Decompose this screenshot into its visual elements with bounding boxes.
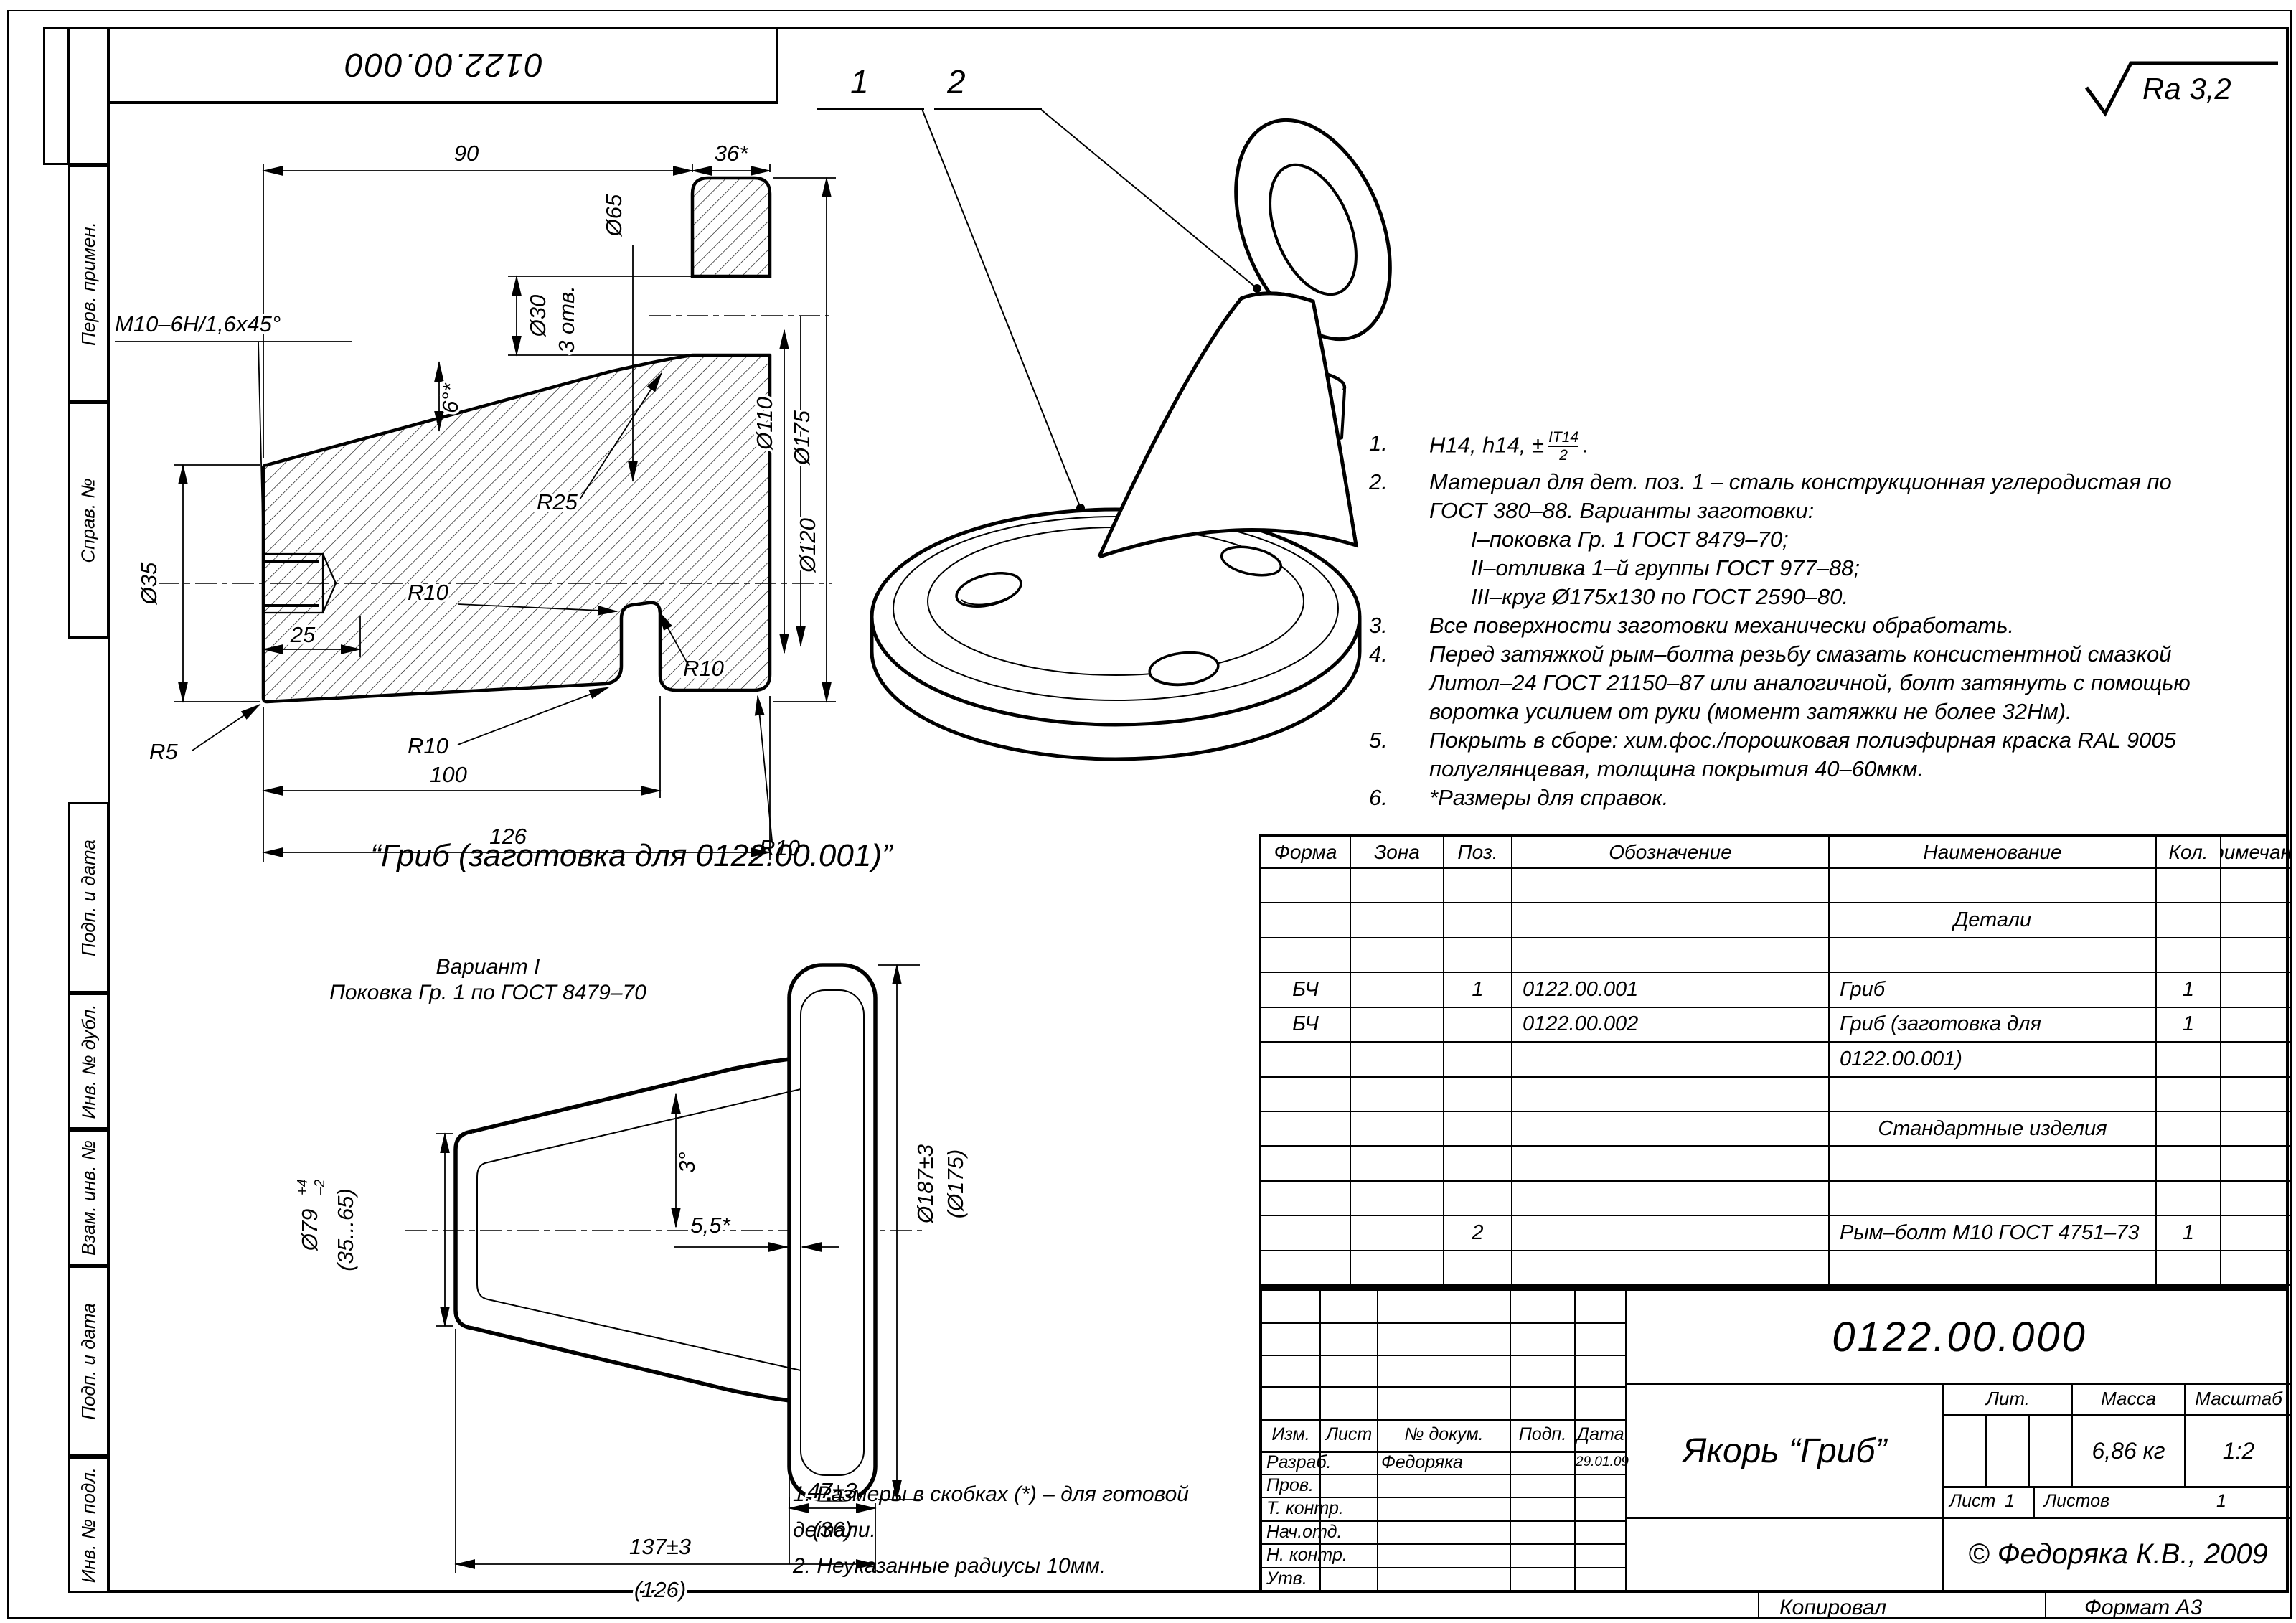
- specification-table: Форма Зона Поз. Обозначение Наименование…: [1259, 834, 2289, 1288]
- margin-box-perv-primen: Перв. примен.: [68, 165, 109, 402]
- spec-cell: [2221, 973, 2291, 1007]
- note-3-line-1: Все поверхности заготовки механически об…: [1429, 613, 2014, 638]
- spec-cell: [2157, 1251, 2221, 1286]
- dim-3deg-label: 3°: [674, 1152, 700, 1173]
- spec-cell: [1261, 869, 1351, 903]
- spec-cell: [1351, 938, 1444, 973]
- scale-label: Масштаб: [2186, 1383, 2292, 1414]
- dim-r25-label: R25: [537, 489, 578, 514]
- dim-d187-label: Ø187±3: [913, 1144, 938, 1224]
- note-1: 1. H14, h14, ±IT142.: [1363, 429, 2296, 464]
- spec-cell: [1261, 1112, 1351, 1147]
- dim-angle-label: 6°*: [438, 382, 463, 413]
- note-5-line-2w: полуглянцевая, толщина покрытия 40–60мкм…: [1363, 755, 2296, 784]
- note-1-num: 1.: [1369, 429, 1388, 458]
- thread-callout-label: M10–6H/1,6х45°: [115, 311, 281, 337]
- blank-view-subtitle: “Гриб (заготовка для 0122.00.001)”: [301, 838, 961, 874]
- spec-cell: [1444, 903, 1512, 938]
- blank-stem-outline: [456, 1059, 791, 1401]
- spec-cell: [1512, 1078, 1830, 1112]
- spec-cell: Гриб: [1830, 973, 2157, 1007]
- note-2-sub-3w: III–круг Ø175х130 по ГОСТ 2590–80.: [1363, 583, 2296, 611]
- spec-cell: [2221, 1008, 2291, 1043]
- part-title: Якорь “Гриб”: [1627, 1385, 1942, 1517]
- staff-nachotd-label: Нач.отд.: [1266, 1520, 1374, 1543]
- col-list-label: Лист: [1321, 1419, 1377, 1451]
- spec-cell: [2221, 1078, 2291, 1112]
- spec-cell: 0122.00.002: [1512, 1008, 1830, 1043]
- staff-utv-label: Утв.: [1266, 1567, 1374, 1590]
- staff-razrab-date: 29.01.09: [1576, 1451, 1625, 1474]
- corner-cell-b: [67, 27, 109, 165]
- note-6-line-1: *Размеры для справок.: [1429, 785, 1668, 810]
- staff-razrab-name: Федоряка: [1381, 1451, 1507, 1474]
- spec-cell: 1: [1444, 973, 1512, 1007]
- note-6-num: 6.: [1369, 784, 1388, 812]
- note-2-sub-2w: II–отливка 1–й группы ГОСТ 977–88;: [1363, 554, 2296, 583]
- spec-cell: [1444, 1008, 1512, 1043]
- note-5-num: 5.: [1369, 726, 1388, 755]
- spec-cell: [1351, 1112, 1444, 1147]
- blank-variant-note: Вариант I Поковка Гр. 1 по ГОСТ 8479–70: [280, 954, 696, 1006]
- dim-d79-tol-plus: +4: [295, 1179, 311, 1195]
- spec-cell: 0122.00.001: [1512, 973, 1830, 1007]
- spec-cell: [1351, 1043, 1444, 1077]
- spec-cell: [1351, 1008, 1444, 1043]
- margin-box-inv-dubl: Инв. № дубл.: [68, 993, 109, 1129]
- dim-126-ref-label: (126): [634, 1577, 686, 1602]
- spec-cell: [2157, 1112, 2221, 1147]
- surface-finish-symbol: Ra 3,2: [2074, 53, 2289, 122]
- blank-note-1: 1. Размеры в скобках (*) – для готовой д…: [793, 1477, 1266, 1548]
- spec-cell: [1444, 1147, 1512, 1181]
- spec-cell: [2221, 1182, 2291, 1216]
- spec-cell: [2157, 938, 2221, 973]
- dim-d30-count-label: 3 отв.: [554, 286, 579, 353]
- spec-cell: [2221, 869, 2291, 903]
- note-1-text: H14, h14, ±: [1429, 432, 1544, 457]
- note-1-fraction: IT142: [1548, 429, 1578, 464]
- spec-cell: [1512, 869, 1830, 903]
- spec-cell: [1512, 938, 1830, 973]
- spec-cell: [2157, 1078, 2221, 1112]
- corner-cell-a: [43, 27, 69, 165]
- spec-cell: [1830, 1182, 2157, 1216]
- margin-label: Инв. № дубл.: [77, 1004, 100, 1119]
- r10-leader-2: [458, 687, 608, 745]
- spec-table-row: БЧ0122.00.002Гриб (заготовка для1: [1261, 1008, 2291, 1043]
- margin-label: Справ. №: [77, 478, 100, 563]
- dim-d30-label: Ø30: [525, 295, 550, 338]
- spec-table-row: [1261, 1078, 2291, 1112]
- note-5: 5.Покрыть в сборе: хим.фос./порошковая п…: [1363, 726, 2296, 755]
- spec-cell: БЧ: [1261, 1008, 1351, 1043]
- spec-cell: [2221, 938, 2291, 973]
- spec-cell: [1512, 1043, 1830, 1077]
- sheets-label: Листов: [2044, 1486, 2123, 1517]
- dim-d65-label: Ø65: [601, 194, 626, 237]
- dim-d175-ref-label: (Ø175): [943, 1149, 968, 1218]
- spec-cell: [1351, 1182, 1444, 1216]
- note-4-line-3: воротка усилием от руки (момент затяжки …: [1429, 699, 2072, 724]
- spec-cell: [2221, 1216, 2291, 1251]
- dim-55-label: 5,5*: [690, 1213, 730, 1238]
- spec-cell: 1: [2157, 1008, 2221, 1043]
- r5-leader: [192, 705, 260, 751]
- dim-r10-label-3: R10: [683, 656, 724, 681]
- note-4: 4.Перед затяжкой рым–болта резьбу смазат…: [1363, 640, 2296, 669]
- dim-d187: [878, 965, 920, 1500]
- dim-d79-tol-minus: –2: [312, 1180, 328, 1196]
- lit-label: Лит.: [1944, 1383, 2071, 1414]
- dim-r10-label-1: R10: [408, 580, 448, 605]
- flange-top-section: [692, 178, 770, 276]
- doc-number: 0122.00.000: [1627, 1291, 2292, 1383]
- spec-cell: [2157, 1147, 2221, 1181]
- spec-cell: [1351, 1251, 1444, 1286]
- dim-25-label: 25: [290, 622, 316, 647]
- staff-razrab-label: Разраб.: [1266, 1451, 1374, 1474]
- spec-header-poz: Поз.: [1444, 837, 1512, 869]
- roughness-value: Ra 3,2: [2142, 72, 2231, 105]
- margin-box-vzam-inv: Взам. инв. №: [68, 1129, 109, 1266]
- note-1-post: .: [1583, 432, 1589, 457]
- spec-cell: [2221, 903, 2291, 938]
- spec-cell: [1512, 1112, 1830, 1147]
- spec-cell: [1261, 1147, 1351, 1181]
- callout-2-label: 2: [946, 63, 966, 100]
- mass-value: 6,86 кг: [2073, 1416, 2184, 1486]
- note-6: 6.*Размеры для справок.: [1363, 784, 2296, 812]
- staff-nkontr-label: Н. контр.: [1266, 1543, 1374, 1567]
- spec-cell: [1512, 1251, 1830, 1286]
- spec-cell: [1512, 903, 1830, 938]
- margin-label: Перв. примен.: [77, 222, 100, 346]
- spec-table-row: БЧ10122.00.001Гриб1: [1261, 973, 2291, 1007]
- technical-notes: 1. H14, h14, ±IT142. 2.Материал для дет.…: [1363, 429, 2296, 812]
- dim-d79-label: Ø79: [297, 1209, 322, 1252]
- note-3-num: 3.: [1369, 611, 1388, 640]
- spec-header-zona: Зона: [1351, 837, 1444, 869]
- spec-table-row: Детали: [1261, 903, 2291, 938]
- sheets-value: 1: [2216, 1486, 2259, 1517]
- sheet-value: 1: [2005, 1486, 2031, 1517]
- note-4-line-1: Перед затяжкой рым–болта резьбу смазать …: [1429, 641, 2172, 667]
- spec-cell: [1512, 1147, 1830, 1181]
- dim-r5-label: R5: [149, 739, 178, 764]
- blank-local-notes: 1. Размеры в скобках (*) – для готовой д…: [793, 1477, 1266, 1584]
- spec-table-row: [1261, 1147, 2291, 1181]
- dim-137-label: 137±3: [629, 1534, 691, 1559]
- spec-cell: [2157, 903, 2221, 938]
- note-4-line-2w: Литол–24 ГОСТ 21150–87 или аналогичной, …: [1363, 669, 2296, 697]
- spec-cell: [1261, 1182, 1351, 1216]
- callout-1-label: 1: [850, 63, 869, 100]
- spec-cell: [1444, 1112, 1512, 1147]
- spec-cell: [2157, 1043, 2221, 1077]
- spec-cell: [1830, 869, 2157, 903]
- note-2-line-2w: ГОСТ 380–88. Варианты заготовки:: [1363, 497, 2296, 525]
- dim-d35-label: Ø35: [136, 562, 161, 605]
- dim-d79-label-group: Ø79 +4 –2: [295, 1179, 328, 1251]
- spec-cell: [1261, 938, 1351, 973]
- note-5-line-1: Покрыть в сборе: хим.фос./порошковая пол…: [1429, 728, 2176, 753]
- spec-cell: [1830, 1147, 2157, 1181]
- margin-label: Подп. и дата: [77, 839, 100, 956]
- note-4-line-2: Литол–24 ГОСТ 21150–87 или аналогичной, …: [1429, 670, 2191, 695]
- isometric-view: 1 2: [811, 50, 1428, 775]
- copyright: © Федоряка К.В., 2009: [1944, 1519, 2292, 1590]
- scale-value: 1:2: [2186, 1416, 2292, 1486]
- dim-d79-ref-label: (35...65): [333, 1188, 358, 1271]
- col-doc-label: № докум.: [1378, 1419, 1510, 1451]
- staff-prov-label: Пров.: [1266, 1474, 1374, 1497]
- fraction-numerator: IT14: [1548, 429, 1578, 446]
- spec-table-row: 0122.00.001): [1261, 1043, 2291, 1077]
- spec-cell: 1: [2157, 1216, 2221, 1251]
- margin-box-inv-podl: Инв. № подл.: [68, 1457, 109, 1593]
- spec-cell: Рым–болт М10 ГОСТ 4751–73: [1830, 1216, 2157, 1251]
- cone-overlay: [1099, 293, 1356, 557]
- variant-line-2: Поковка Гр. 1 по ГОСТ 8479–70: [280, 980, 696, 1006]
- bottom-strip-tick-1: [1758, 1593, 1759, 1619]
- finished-stem-lines: [477, 1089, 801, 1370]
- spec-cell: [1351, 869, 1444, 903]
- note-5-line-2: полуглянцевая, толщина покрытия 40–60мкм…: [1429, 756, 1924, 781]
- dim-36-label: 36*: [715, 141, 748, 166]
- note-2-sub-3: III–круг Ø175х130 по ГОСТ 2590–80.: [1471, 584, 1848, 609]
- note-2-line-1: Материал для дет. поз. 1 – сталь констру…: [1429, 469, 2172, 494]
- spec-cell: [2221, 1112, 2291, 1147]
- spec-cell: [1351, 1147, 1444, 1181]
- margin-box-sprav-no: Справ. №: [68, 402, 109, 639]
- spec-header-row: Форма Зона Поз. Обозначение Наименование…: [1261, 837, 2291, 869]
- spec-table-row: [1261, 1251, 2291, 1286]
- variant-line-1: Вариант I: [280, 954, 696, 980]
- title-block: Изм. Лист № докум. Подп. Дата Разраб. Фе…: [1259, 1288, 2289, 1593]
- spec-cell: [1444, 1078, 1512, 1112]
- spec-cell: [1512, 1182, 1830, 1216]
- spec-table-row: [1261, 1182, 2291, 1216]
- spec-cell: [1512, 1216, 1830, 1251]
- copied-by-label: Копировал: [1779, 1596, 1886, 1620]
- spec-table-row: [1261, 869, 2291, 903]
- margin-label: Инв. № подл.: [77, 1467, 100, 1582]
- spec-cell: 1: [2157, 973, 2221, 1007]
- format-label: Формат А3: [2084, 1596, 2202, 1620]
- dim-90-label: 90: [454, 141, 479, 166]
- spec-cell: Гриб (заготовка для: [1830, 1008, 2157, 1043]
- spec-cell: Детали: [1830, 903, 2157, 938]
- spec-cell: [2221, 1147, 2291, 1181]
- fraction-denominator: 2: [1548, 446, 1578, 464]
- spec-cell: [1261, 1251, 1351, 1286]
- spec-header-kol: Кол.: [2157, 837, 2221, 869]
- note-2-num: 2.: [1369, 468, 1388, 497]
- blank-note-2: 2. Неуказанные радиусы 10мм.: [793, 1548, 1266, 1584]
- margin-box-podp-data-1: Подп. и дата: [68, 802, 109, 993]
- note-2-sub-2: II–отливка 1–й группы ГОСТ 977–88;: [1471, 555, 1860, 580]
- spec-cell: [1444, 869, 1512, 903]
- spec-cell: [1444, 1043, 1512, 1077]
- sheet-label: Лист: [1949, 1486, 2000, 1517]
- spec-header-primechanie: Примечание: [2221, 837, 2291, 869]
- note-2: 2.Материал для дет. поз. 1 – сталь конст…: [1363, 468, 2296, 497]
- spec-cell: [2221, 1043, 2291, 1077]
- spec-cell: [1351, 1078, 1444, 1112]
- col-izm-label: Изм.: [1262, 1419, 1319, 1451]
- drawing-sheet: 0122.00.000 Перв. примен. Справ. № Подп.…: [0, 0, 2296, 1623]
- note-4-num: 4.: [1369, 640, 1388, 669]
- note-4-line-3w: воротка усилием от руки (момент затяжки …: [1363, 697, 2296, 726]
- margin-label: Подп. и дата: [77, 1303, 100, 1420]
- note-2-sub-1: I–поковка Гр. 1 ГОСТ 8479–70;: [1471, 527, 1789, 552]
- bottom-strip-tick-2: [2045, 1593, 2046, 1619]
- blank-disc-outline: [789, 965, 875, 1500]
- spec-cell: [1830, 938, 2157, 973]
- spec-cell: [2157, 1182, 2221, 1216]
- mass-label: Масса: [2073, 1383, 2184, 1414]
- spec-cell: Стандартные изделия: [1830, 1112, 2157, 1147]
- spec-cell: [1261, 1078, 1351, 1112]
- spec-cell: [1351, 973, 1444, 1007]
- note-3: 3.Все поверхности заготовки механически …: [1363, 611, 2296, 640]
- spec-table-row: Стандартные изделия: [1261, 1112, 2291, 1147]
- spec-cell: [1351, 903, 1444, 938]
- spec-cell: [1444, 1182, 1512, 1216]
- spec-table-row: [1261, 938, 2291, 973]
- spec-cell: [1830, 1251, 2157, 1286]
- margin-box-podp-data-2: Подп. и дата: [68, 1266, 109, 1457]
- margin-label: Взам. инв. №: [77, 1140, 100, 1256]
- spec-cell: [1830, 1078, 2157, 1112]
- spec-cell: [2157, 869, 2221, 903]
- spec-cell: [1444, 938, 1512, 973]
- spec-cell: [1444, 1251, 1512, 1286]
- dim-r10-label-2: R10: [408, 733, 448, 758]
- note-2-line-2: ГОСТ 380–88. Варианты заготовки:: [1429, 498, 1814, 523]
- spec-cell: [1261, 1043, 1351, 1077]
- spec-table-row: 2Рым–болт М10 ГОСТ 4751–731: [1261, 1216, 2291, 1251]
- spec-cell: БЧ: [1261, 973, 1351, 1007]
- main-section-view: 90 36* Ø30 3 отв. M10–6H/1,6х45° Ø35 R5: [115, 79, 861, 897]
- spec-header-naimenovanie: Наименование: [1830, 837, 2157, 869]
- note-2-sub-1w: I–поковка Гр. 1 ГОСТ 8479–70;: [1363, 525, 2296, 554]
- spec-cell: [1261, 1216, 1351, 1251]
- spec-cell: 2: [1444, 1216, 1512, 1251]
- spec-cell: 0122.00.001): [1830, 1043, 2157, 1077]
- dim-d79: [436, 1134, 453, 1326]
- dim-d110-label: Ø110: [752, 397, 777, 451]
- staff-tkontr-label: Т. контр.: [1266, 1497, 1374, 1520]
- spec-header-forma: Форма: [1261, 837, 1351, 869]
- col-data-label: Дата: [1576, 1419, 1625, 1451]
- dim-100-label: 100: [430, 762, 467, 787]
- spec-cell: [1351, 1216, 1444, 1251]
- spec-cell: [1261, 903, 1351, 938]
- spec-cell: [2221, 1251, 2291, 1286]
- spec-header-oboznachenie: Обозначение: [1512, 837, 1830, 869]
- col-podp-label: Подп.: [1511, 1419, 1574, 1451]
